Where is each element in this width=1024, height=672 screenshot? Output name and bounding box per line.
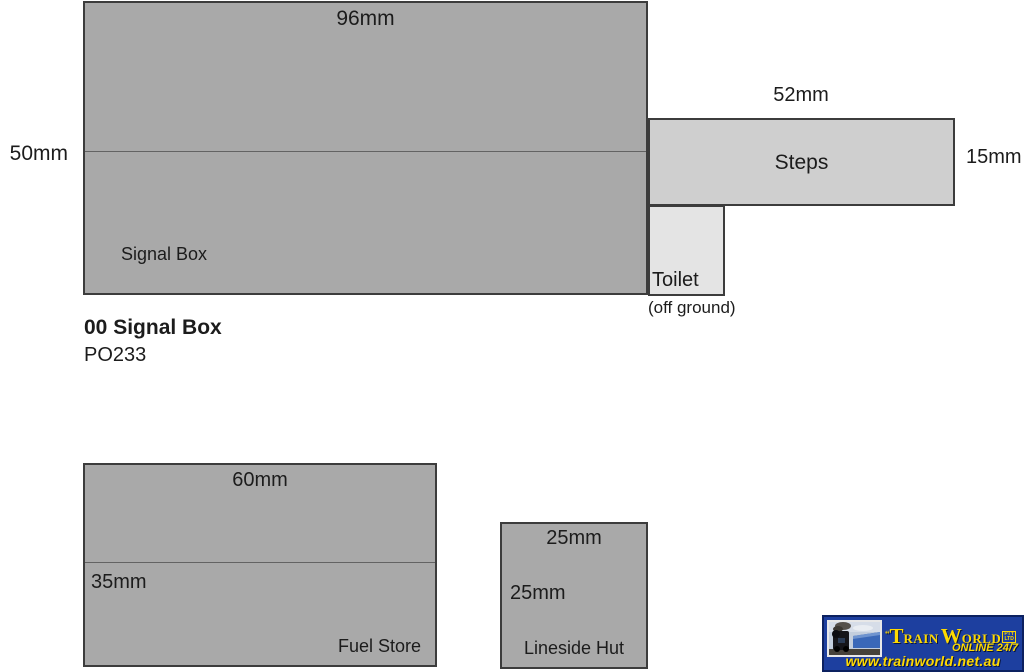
steps-footprint: Steps bbox=[648, 118, 955, 206]
toilet-label: Toilet bbox=[652, 269, 699, 292]
lineside-hut-label: Lineside Hut bbox=[502, 639, 646, 659]
fuel-store-label: Fuel Store bbox=[338, 637, 421, 657]
product-title: 00 Signal Box bbox=[84, 316, 222, 340]
trainworld-url: www.trainworld.net.au bbox=[824, 653, 1022, 669]
lineside-hut-width-dimension: 25mm bbox=[502, 527, 646, 549]
signal-box-divider-line bbox=[85, 151, 646, 152]
lineside-hut-footprint: 25mm 25mm Lineside Hut bbox=[500, 522, 648, 669]
train-photo-icon bbox=[827, 620, 882, 657]
fuel-store-divider-line bbox=[85, 562, 435, 563]
toilet-note: (off ground) bbox=[648, 298, 736, 318]
signal-box-label: Signal Box bbox=[121, 245, 207, 265]
steps-height-dimension: 15mm bbox=[966, 146, 1022, 168]
fuel-store-footprint: 60mm 35mm Fuel Store bbox=[83, 463, 437, 667]
fuel-store-height-dimension: 35mm bbox=[91, 571, 147, 593]
signal-box-width-dimension: 96mm bbox=[85, 7, 646, 30]
lineside-hut-height-dimension: 25mm bbox=[510, 582, 566, 604]
brand-letter-t: T bbox=[890, 624, 904, 648]
footprint-diagram-page: 96mm Signal Box 50mm 52mm Steps 15mm Toi… bbox=[0, 0, 1024, 672]
fuel-store-width-dimension: 60mm bbox=[85, 469, 435, 491]
trainworld-logo-banner: “TRAINWORLDPTYLTD ONLINE 24/7 www.trainw… bbox=[822, 615, 1024, 672]
steps-width-dimension: 52mm bbox=[701, 84, 901, 106]
brand-rain: RAIN bbox=[904, 631, 939, 646]
toilet-footprint: Toilet bbox=[648, 205, 725, 296]
product-code: PO233 bbox=[84, 344, 146, 367]
signal-box-height-dimension: 50mm bbox=[2, 142, 68, 165]
steps-label: Steps bbox=[650, 151, 953, 175]
signal-box-footprint: 96mm Signal Box bbox=[83, 1, 648, 295]
